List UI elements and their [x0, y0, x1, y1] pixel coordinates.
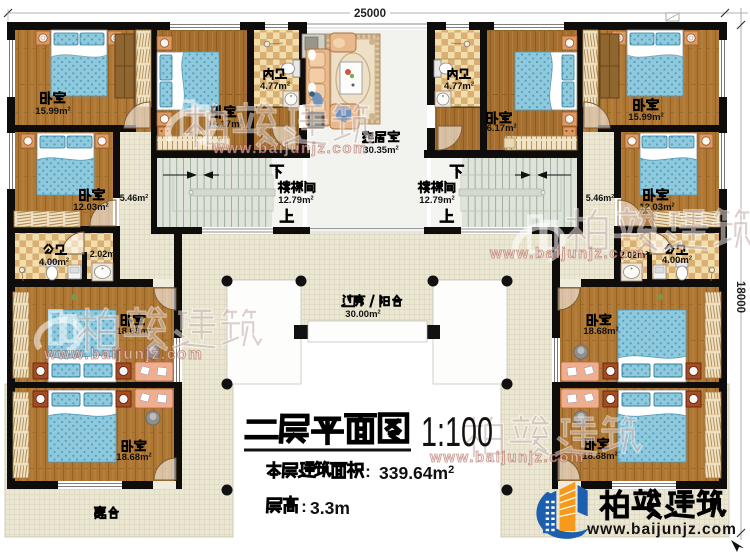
svg-text:30.35m2: 30.35m2	[363, 145, 398, 156]
svg-text:15.99m2: 15.99m2	[35, 106, 70, 117]
svg-text:15.99m2: 15.99m2	[628, 112, 663, 123]
svg-text:www.baijunjz.com: www.baijunjz.com	[489, 245, 645, 262]
svg-text:30.00m2: 30.00m2	[345, 309, 380, 320]
svg-text:18000: 18000	[734, 281, 746, 313]
svg-text::: :	[365, 462, 371, 481]
svg-text:5.46m2: 5.46m2	[120, 193, 149, 203]
svg-text:www.baijunjz.com: www.baijunjz.com	[586, 521, 737, 538]
svg-text:3.3m: 3.3m	[310, 498, 350, 518]
svg-text:www.baijunjz.com: www.baijunjz.com	[43, 346, 203, 363]
svg-text:12.03m2: 12.03m2	[73, 202, 108, 213]
svg-text:12.03m2: 12.03m2	[639, 202, 674, 213]
svg-text:4.00m2: 4.00m2	[662, 255, 692, 266]
svg-text::: :	[301, 497, 307, 516]
svg-text:4.77m2: 4.77m2	[444, 81, 474, 92]
svg-text:4.00m2: 4.00m2	[39, 257, 69, 268]
svg-text:www.baijunjz.com: www.baijunjz.com	[212, 140, 368, 157]
svg-text:5.46m2: 5.46m2	[586, 193, 615, 203]
svg-text:4.77m2: 4.77m2	[260, 81, 290, 92]
svg-text:16.17m2: 16.17m2	[481, 123, 516, 134]
svg-text:1:100: 1:100	[421, 408, 493, 455]
svg-text:2.02m2: 2.02m2	[90, 249, 119, 259]
svg-text:18.68m2: 18.68m2	[583, 326, 618, 337]
svg-text:18.68m2: 18.68m2	[116, 452, 151, 463]
svg-text:12.79m2: 12.79m2	[278, 195, 313, 206]
svg-text:339.64m2: 339.64m2	[379, 463, 454, 483]
svg-text:25000: 25000	[354, 8, 386, 20]
svg-text:12.79m2: 12.79m2	[419, 195, 454, 206]
